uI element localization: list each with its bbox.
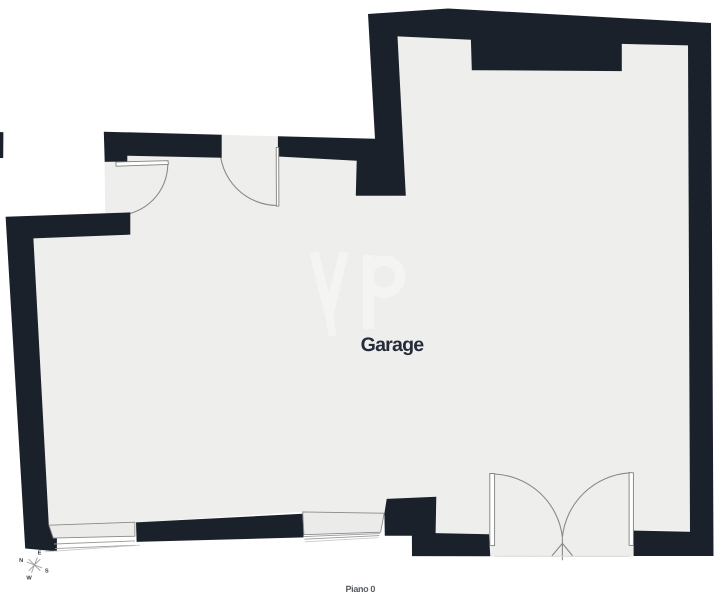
svg-text:S: S [45,569,49,575]
svg-text:W: W [26,576,32,582]
svg-text:Piano 0: Piano 0 [346,584,376,594]
svg-text:E: E [38,551,42,557]
svg-text:Garage: Garage [361,334,425,356]
svg-text:N: N [19,558,23,564]
